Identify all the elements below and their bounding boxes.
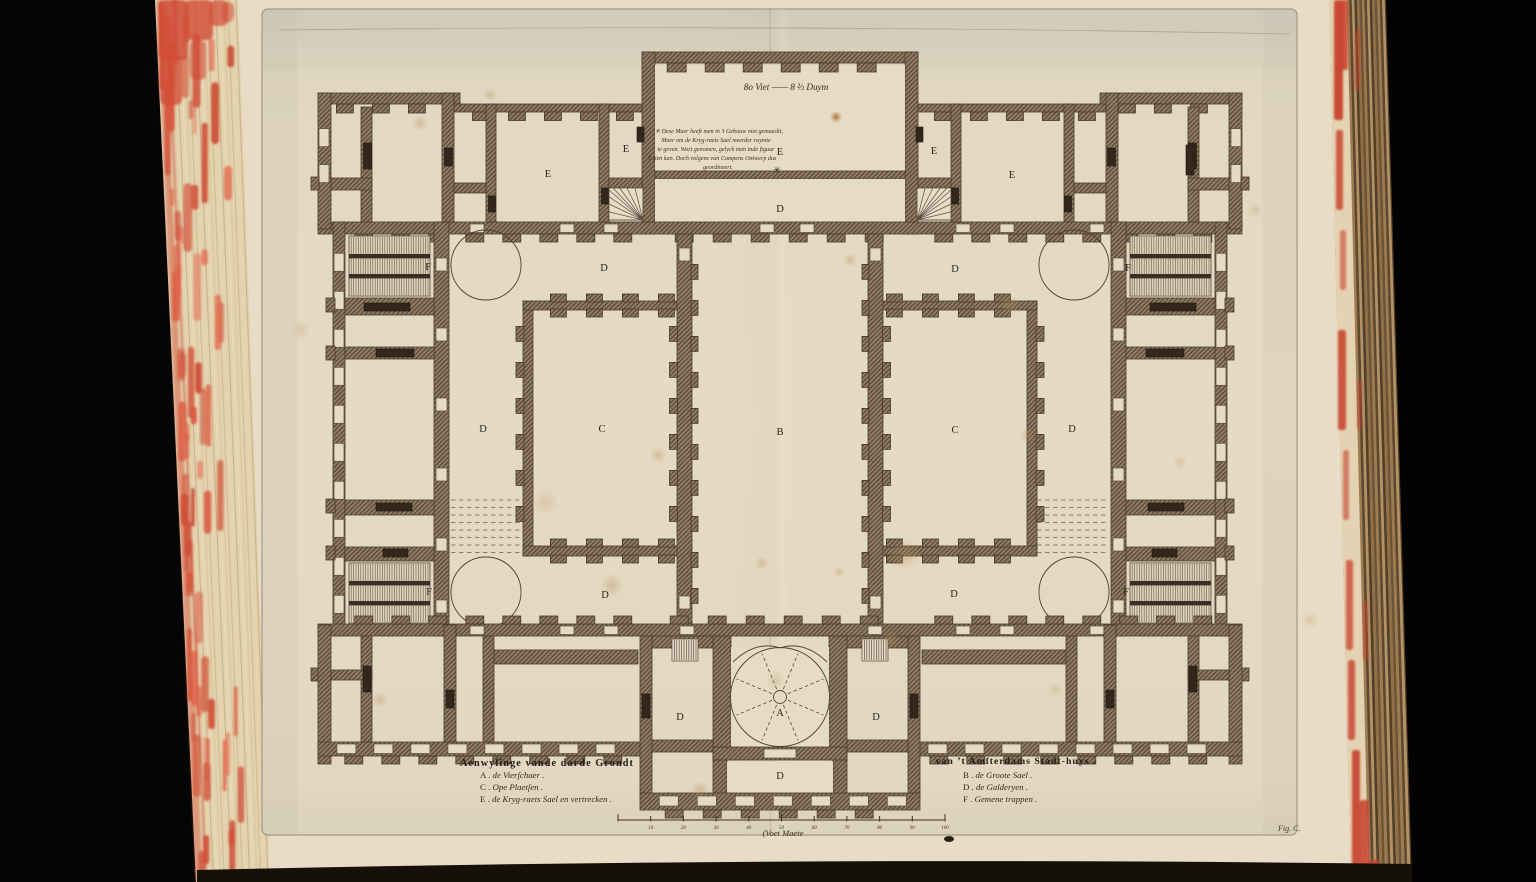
svg-text:F: F [1125,263,1131,274]
svg-text:A . de Vierſchaer .: A . de Vierſchaer . [480,770,544,780]
svg-text:geordineert.: geordineert. [703,165,733,171]
svg-text:20: 20 [681,826,687,831]
svg-text:40: 40 [746,826,752,831]
svg-text:B: B [776,427,783,438]
svg-text:E: E [931,146,937,157]
svg-text:D . de Galderyen .: D . de Galderyen . [963,782,1028,792]
svg-text:E: E [545,169,551,180]
svg-text:C: C [951,425,958,436]
svg-text:(Voet Maete: (Voet Maete [763,828,804,838]
svg-text:F . Gemene trappen .: F . Gemene trappen . [963,794,1037,804]
svg-text:D: D [1068,424,1076,435]
svg-text:✳ Dese Muer heeft men in ’t Ge: ✳ Dese Muer heeft men in ’t Gebouw niet … [655,128,783,135]
svg-text:30: 30 [714,826,720,831]
svg-text:D: D [872,712,880,723]
svg-text:10: 10 [648,826,654,831]
svg-text:E: E [1009,170,1015,181]
svg-text:100: 100 [941,826,949,831]
svg-text:van ’t Amſterdams Stadt-huys .: van ’t Amſterdams Stadt-huys . [936,756,1097,767]
svg-text:60: 60 [812,826,818,831]
svg-text:te geven. Wort genomen, gelyck: te geven. Wort genomen, gelyck men inde … [657,146,775,153]
svg-text:Aenwyſinge vande darde Grondt: Aenwyſinge vande darde Grondt [460,758,634,769]
svg-text:F: F [425,262,431,273]
svg-text:F: F [1123,587,1129,598]
svg-text:90: 90 [910,826,916,831]
svg-text:C: C [598,424,605,435]
svg-text:D: D [676,712,684,723]
svg-text:D: D [951,264,959,275]
svg-text:D: D [479,424,487,435]
svg-text:Maer om de Kryg-raets Sael mee: Maer om de Kryg-raets Sael meerder ruymt… [660,138,771,144]
svg-text:D: D [776,771,784,782]
svg-text:D: D [950,589,958,600]
svg-text:70: 70 [844,826,850,831]
svg-text:A: A [776,708,784,719]
svg-text:E: E [623,144,629,155]
svg-text:Fig. C.: Fig. C. [1277,824,1300,833]
svg-text:✳: ✳ [773,165,781,175]
svg-text:B . de Groote Sael .: B . de Groote Sael . [963,770,1032,780]
svg-text:E . de Kryg-raets Sael en vert: E . de Kryg-raets Sael en vertrecken . [480,794,612,804]
svg-text:E: E [777,147,783,158]
svg-text:Y sien kan. Doch volgens van C: Y sien kan. Doch volgens van Campens Ont… [648,156,777,162]
svg-text:D: D [600,263,608,274]
svg-text:C . Ope Plaetſen .: C . Ope Plaetſen . [480,782,543,792]
svg-text:8o Viet —— 8 ⅔ Duym: 8o Viet —— 8 ⅔ Duym [744,82,829,92]
svg-text:D: D [776,204,784,215]
svg-text:F: F [426,587,432,598]
svg-text:80: 80 [877,826,883,831]
